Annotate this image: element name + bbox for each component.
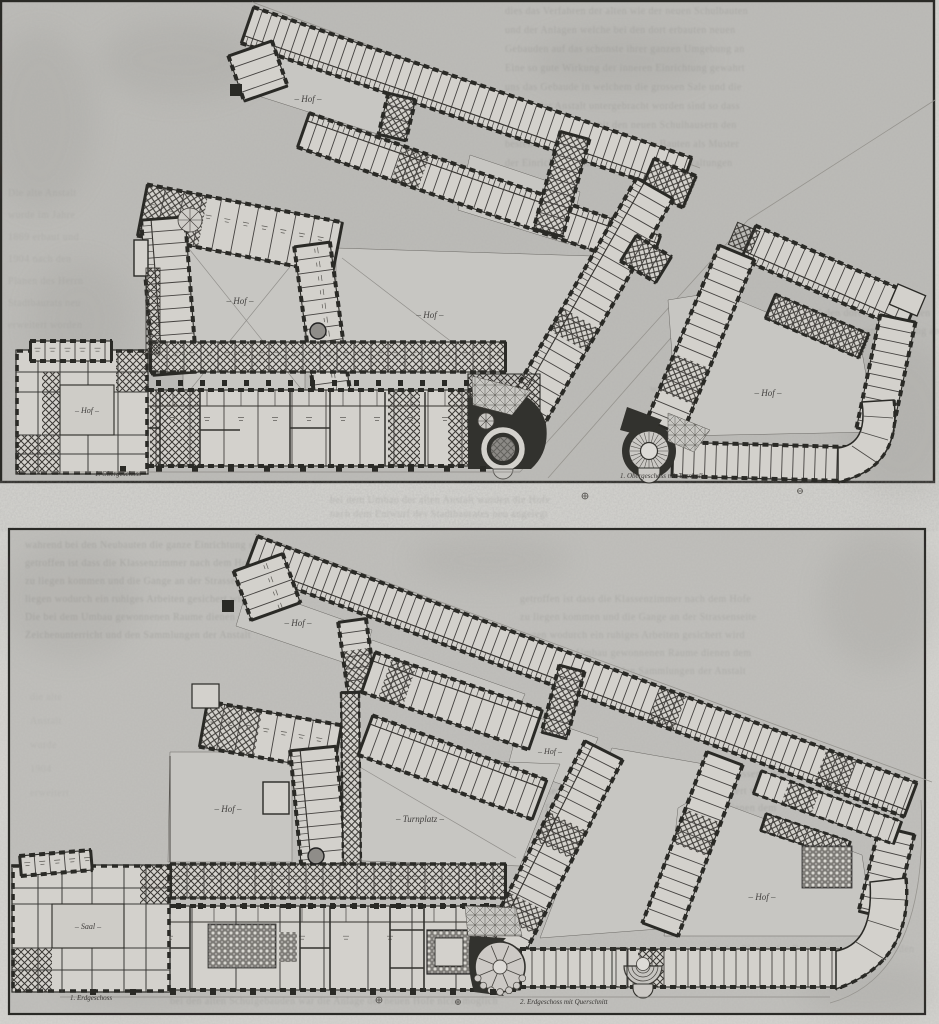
svg-text:dies das Verfahren der alten w: dies das Verfahren der alten wie der neu… (505, 6, 748, 17)
svg-text:wurde: wurde (30, 740, 57, 751)
svg-text:– Hof –: – Hof – (214, 804, 243, 814)
svg-text:– Hof –: – Hof – (226, 296, 255, 306)
svg-text:– Hof –: – Hof – (416, 310, 445, 320)
svg-text:wurde im Jahre: wurde im Jahre (8, 210, 75, 221)
svg-text:getroffen ist dass die Klassen: getroffen ist dass die Klassenzimmer nac… (520, 594, 751, 605)
svg-text:1869 erbaut und: 1869 erbaut und (8, 232, 79, 243)
svg-text:und der Anlagen welche bei den: und der Anlagen welche bei den dort erba… (505, 25, 735, 36)
svg-text:– Saal –: – Saal – (74, 922, 102, 931)
svg-text:– Turnplatz –: – Turnplatz – (395, 814, 445, 824)
svg-text:die alte: die alte (30, 692, 63, 703)
svg-text:1. Obergeschoss mit Turnhalle: 1. Obergeschoss mit Turnhalle (620, 472, 706, 480)
svg-text:1. Obergeschoss: 1. Obergeschoss (95, 470, 141, 478)
svg-text:bei dem Umbau der alten Anstal: bei dem Umbau der alten Anstalt wurden d… (330, 495, 551, 506)
svg-text:getroffen ist dass die Klassen: getroffen ist dass die Klassenzimmer nac… (25, 558, 256, 569)
svg-text:zu liegen kommen und die Gange: zu liegen kommen und die Gange an der St… (25, 576, 262, 587)
svg-text:– Hof –: – Hof – (748, 892, 777, 902)
svg-text:– Hof –: – Hof – (294, 94, 323, 104)
svg-text:liegen wodurch ein ruhiges Arb: liegen wodurch ein ruhiges Arbeiten gesi… (25, 594, 250, 605)
svg-text:erweitert worden: erweitert worden (8, 320, 82, 331)
svg-text:liegen wodurch ein ruhiges Arb: liegen wodurch ein ruhiges Arbeiten gesi… (520, 630, 745, 641)
svg-text:bei den alten Schulgebauden wa: bei den alten Schulgebauden war die Anla… (170, 996, 498, 1007)
svg-text:Die alte Anstalt: Die alte Anstalt (8, 188, 77, 199)
svg-text:nach dem Entwurf des Stadtbaur: nach dem Entwurf des Stadtbaurates neu a… (330, 509, 548, 520)
svg-text:– Hof –: – Hof – (284, 618, 313, 628)
svg-text:1. Erdgeschoss: 1. Erdgeschoss (70, 994, 112, 1002)
svg-text:Planen des Herrn: Planen des Herrn (8, 276, 83, 287)
svg-text:zu liegen kommen und die Gange: zu liegen kommen und die Gange an der St… (520, 612, 757, 623)
svg-text:– Hof –: – Hof – (74, 406, 100, 415)
svg-text:uns das Gebaude in welchem die: uns das Gebaude in welchem die grossen S… (505, 82, 742, 93)
svg-text:Eine so gute Wirkung der inner: Eine so gute Wirkung der inneren Einrich… (505, 63, 745, 74)
svg-text:erweitert: erweitert (30, 788, 69, 799)
svg-text:wahrend bei den Neubauten die: wahrend bei den Neubauten die ganze Einr… (25, 540, 259, 551)
svg-text:Anstalt: Anstalt (30, 716, 62, 727)
svg-text:1904 nach den: 1904 nach den (8, 254, 72, 265)
svg-text:– Hof –: – Hof – (754, 388, 783, 398)
svg-text:Gebauden auf das schonste ihre: Gebauden auf das schonste ihrer ganzen U… (505, 44, 745, 55)
svg-text:Zeichenunterricht und den Samm: Zeichenunterricht und den Sammlungen der… (25, 630, 251, 641)
svg-text:2. Erdgeschoss mit Querschnitt: 2. Erdgeschoss mit Querschnitt (520, 998, 609, 1006)
svg-text:– Hof –: – Hof – (537, 747, 563, 756)
svg-text:1904: 1904 (30, 764, 52, 775)
svg-text:Stadtbaurats neu: Stadtbaurats neu (8, 298, 81, 309)
svg-text:Die bei dem Umbau gewonnenen R: Die bei dem Umbau gewonnenen Raume diene… (25, 612, 257, 623)
